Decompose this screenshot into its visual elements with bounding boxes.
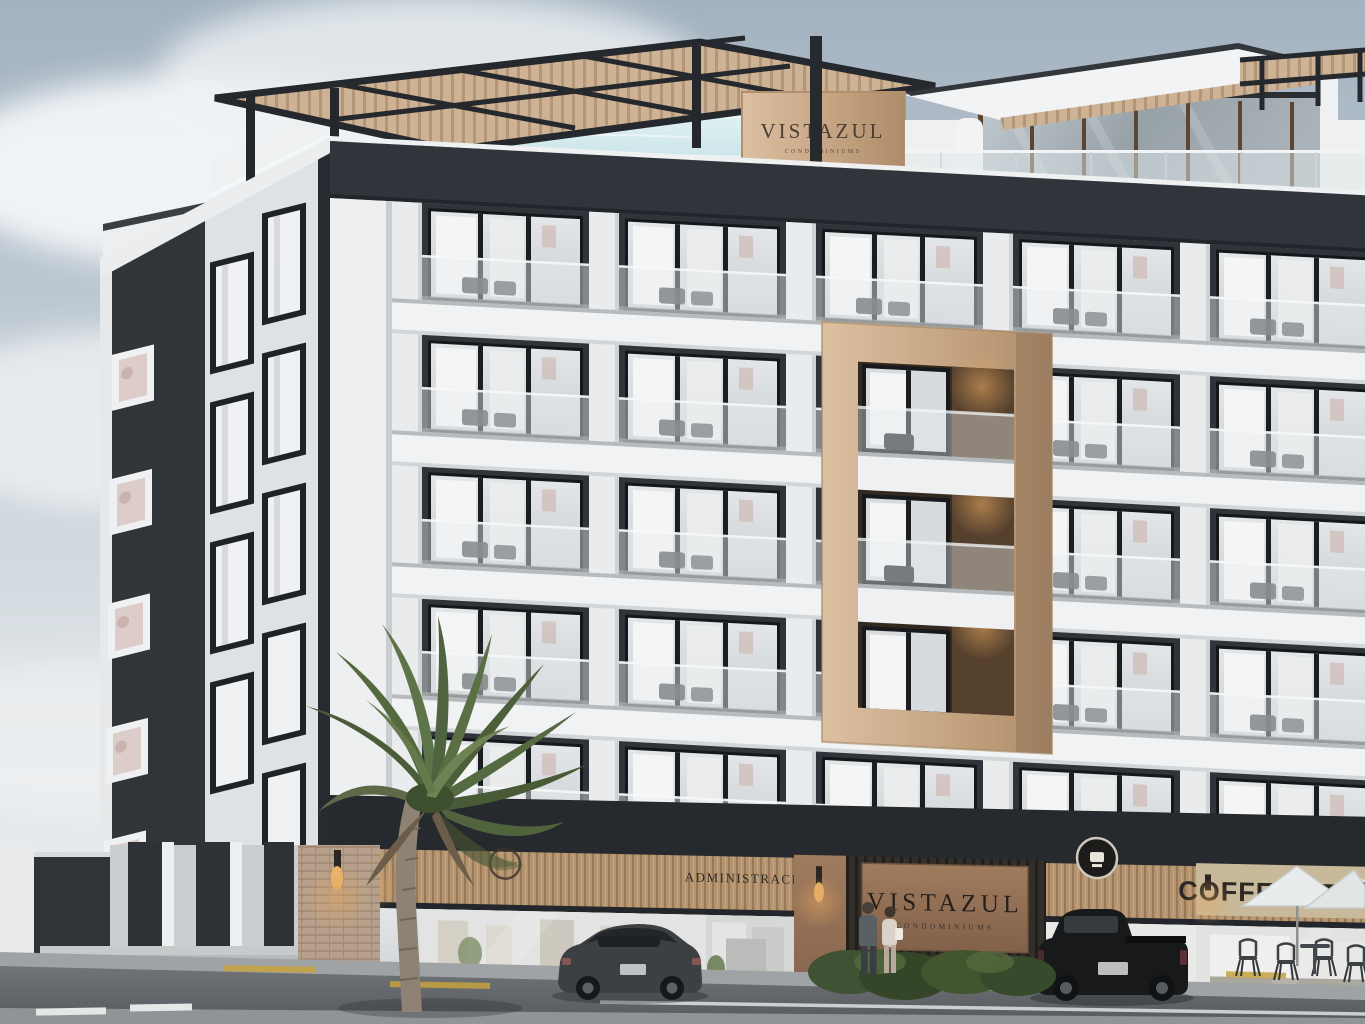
- rendering-canvas: VISTAZUL CONDOMINIUMS: [0, 0, 1365, 1024]
- wood-feature-frame: [822, 322, 1052, 754]
- entry-steps: [40, 946, 340, 955]
- license-plate: [1098, 962, 1128, 975]
- rooftop-sign-subtitle: CONDOMINIUMS: [785, 149, 862, 155]
- entry-panels: [128, 842, 294, 964]
- cafe-table: [1300, 944, 1330, 948]
- side-facade: [100, 136, 332, 913]
- rooftop-sign-name: VISTAZUL: [761, 119, 886, 143]
- taillight: [562, 958, 571, 965]
- license-plate: [620, 964, 646, 975]
- corner-pier: [330, 198, 392, 861]
- handbag: [895, 928, 903, 940]
- pergola-post: [692, 46, 701, 148]
- scene-svg: VISTAZUL CONDOMINIUMS: [0, 0, 1365, 1024]
- hedge: [808, 950, 1056, 1000]
- pergola-post: [810, 36, 822, 174]
- taillight: [692, 958, 701, 965]
- taillight: [1180, 950, 1187, 965]
